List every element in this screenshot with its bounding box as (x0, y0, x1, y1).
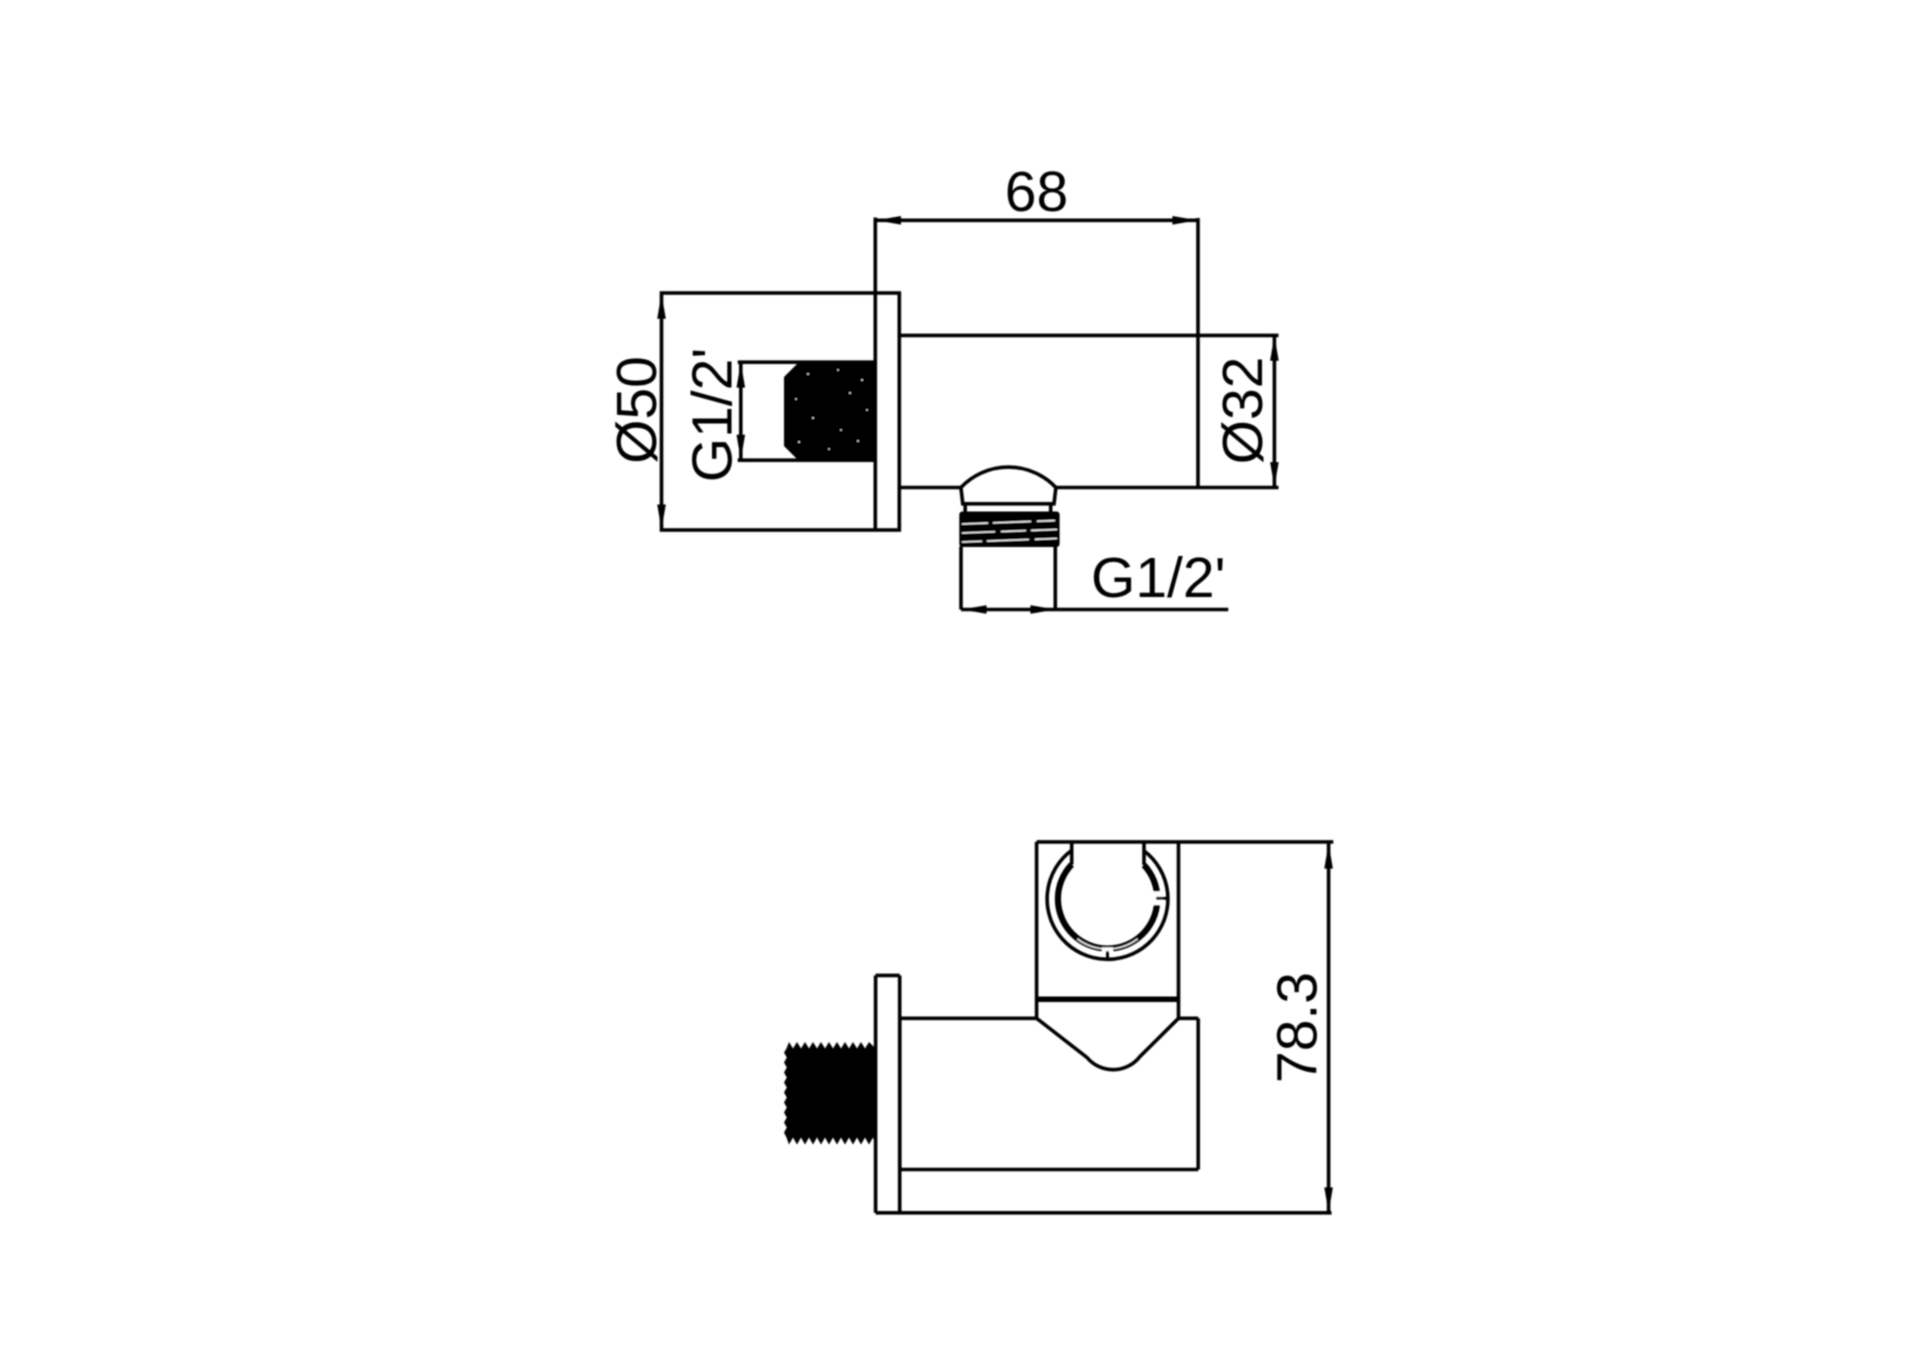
svg-text:Ø32: Ø32 (1211, 357, 1275, 465)
svg-text:68: 68 (1005, 160, 1068, 224)
svg-text:G1/2': G1/2' (1091, 546, 1225, 610)
svg-text:78.3: 78.3 (1265, 972, 1329, 1083)
svg-text:Ø50: Ø50 (605, 356, 669, 464)
svg-text:G1/2': G1/2' (680, 348, 744, 482)
